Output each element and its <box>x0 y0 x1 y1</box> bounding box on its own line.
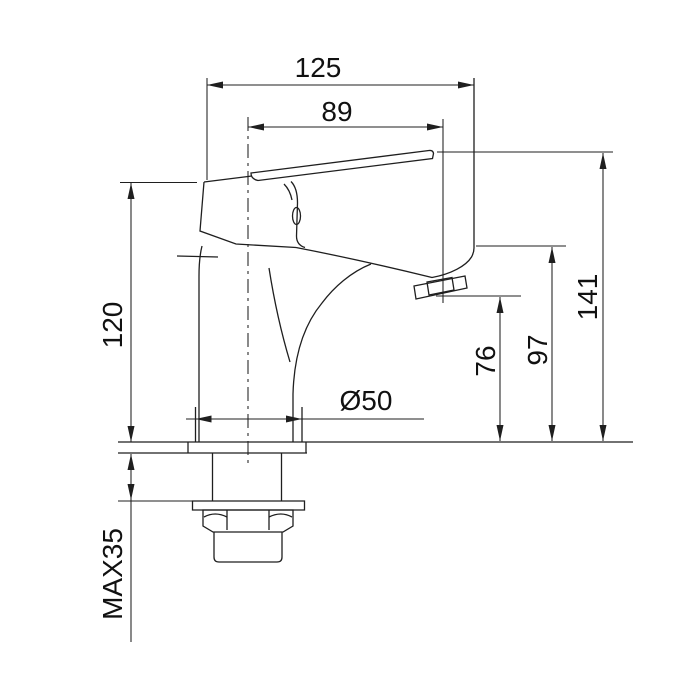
arrow-left <box>207 82 223 89</box>
dimension-spout-underside-height: 97 <box>476 246 566 441</box>
spout-reach-label: 89 <box>321 96 352 127</box>
faucet-body <box>177 78 474 442</box>
technical-drawing-canvas: 125 89 120 MAX35 Ø50 76 <box>0 0 700 700</box>
body-bottom-edge <box>296 248 474 278</box>
body-height-label: 120 <box>97 302 128 349</box>
arrow-up <box>600 153 607 169</box>
lever-handle <box>251 150 434 180</box>
mounting-hardware <box>118 407 633 562</box>
arrow-up <box>549 247 556 263</box>
body-top-edge <box>204 176 252 182</box>
threaded-tail <box>214 532 282 562</box>
riser-back-edge <box>199 246 202 442</box>
overall-height-label: 141 <box>572 274 603 321</box>
dimension-spout-reach: 89 <box>248 96 443 303</box>
arrow-down <box>600 425 607 441</box>
arrow-right <box>427 124 443 131</box>
spout-underside-height-label: 97 <box>522 334 553 365</box>
arrow-right <box>458 82 474 89</box>
overall-projection-label: 125 <box>295 52 342 83</box>
arrow-down <box>128 484 135 500</box>
arrow-up <box>128 183 135 199</box>
arrow-down <box>549 425 556 441</box>
riser-junction-line <box>177 256 218 257</box>
arrow-up <box>128 454 135 470</box>
max-mounting-thickness-label: MAX35 <box>97 528 128 620</box>
hex-nut-outline <box>203 510 293 532</box>
dimension-body-height: 120 <box>97 183 197 443</box>
dimension-outlet-height: 76 <box>436 296 521 441</box>
arrow-down <box>128 426 135 442</box>
aerator-outlet <box>427 278 454 296</box>
arrow-right <box>286 416 302 423</box>
base-diameter-label: Ø50 <box>340 385 393 416</box>
arrow-left <box>248 124 264 131</box>
riser-inner-curve <box>269 268 290 362</box>
tap-dimension-drawing: 125 89 120 MAX35 Ø50 76 <box>0 0 700 700</box>
hex-nut-chamfer-left <box>204 514 227 517</box>
cartridge-cap-curve <box>284 184 292 200</box>
arrow-up <box>497 297 504 313</box>
dimension-base-diameter: Ø50 <box>186 385 424 423</box>
dimension-max-mounting-thickness: MAX35 <box>97 454 192 642</box>
arrow-left <box>196 416 212 423</box>
washer <box>193 501 305 510</box>
hex-nut-chamfer-right <box>269 514 292 517</box>
arrow-down <box>497 425 504 441</box>
outlet-height-label: 76 <box>470 345 501 376</box>
